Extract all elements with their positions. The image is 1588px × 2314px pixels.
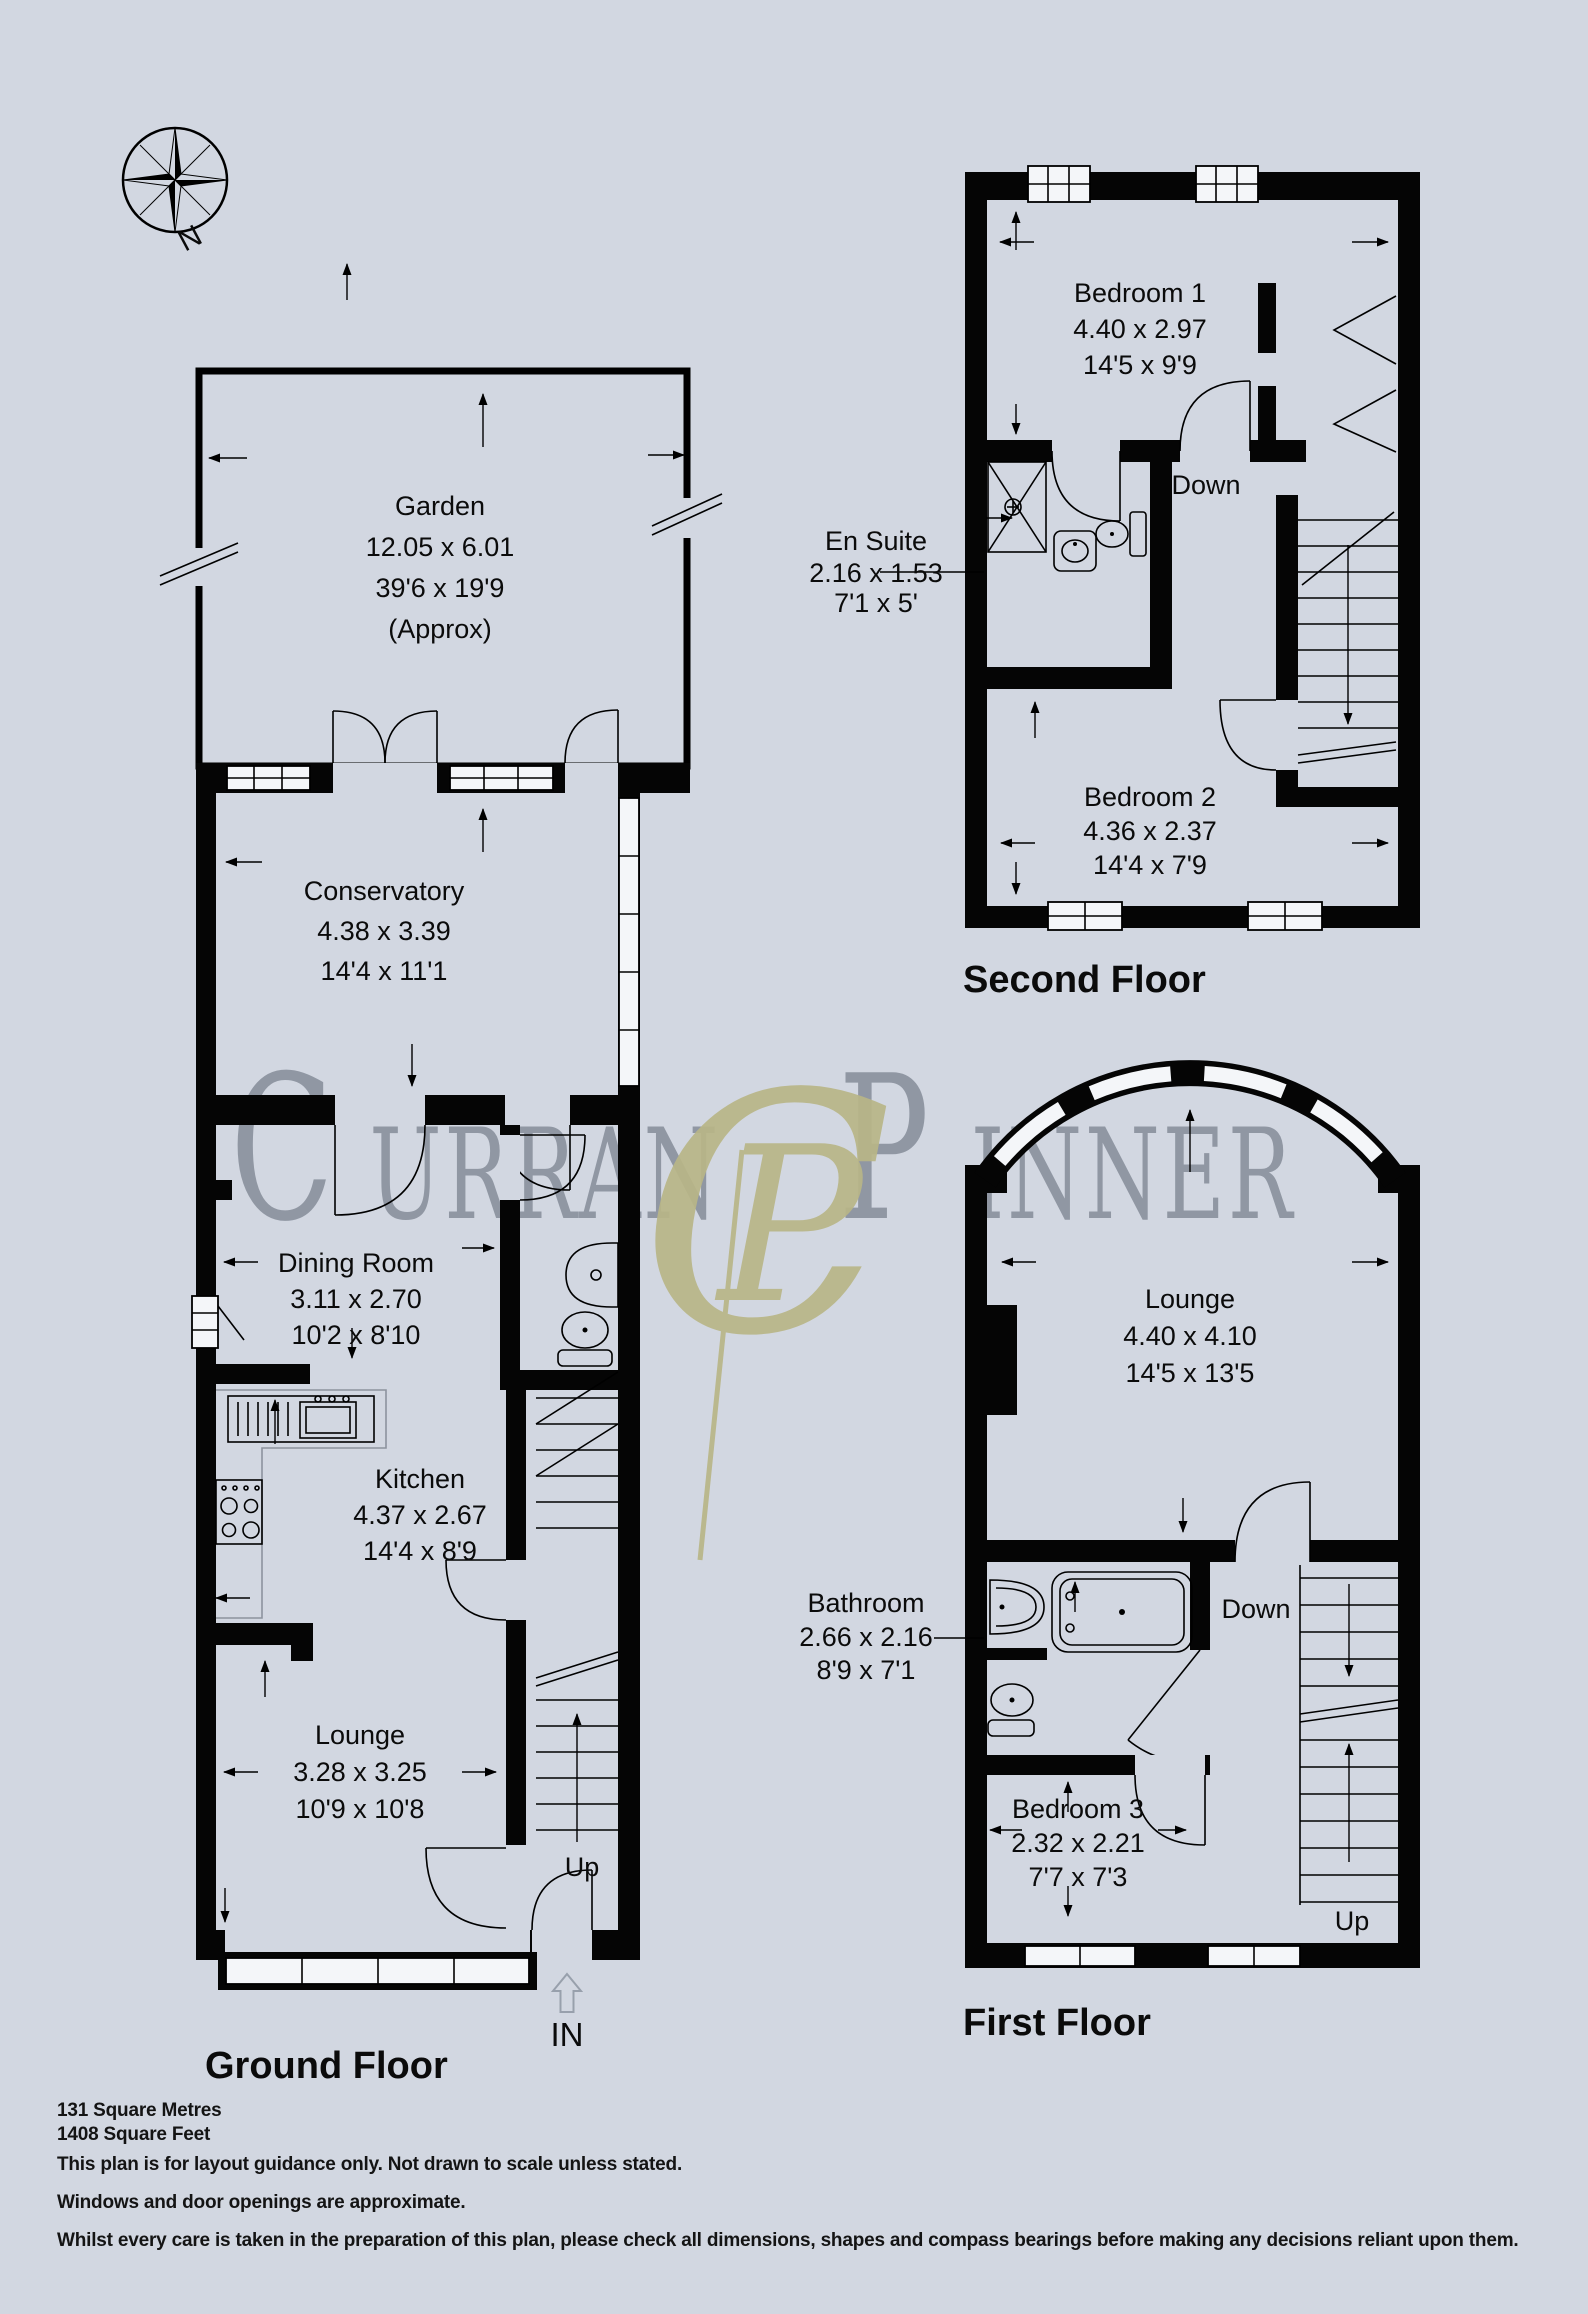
room-label-garden-imperial: 39'6 x 19'9 xyxy=(376,573,505,603)
room-label-bedroom2-name: Bedroom 2 xyxy=(1084,782,1216,812)
footer-disclaimer-3: Whilst every care is taken in the prepar… xyxy=(57,2230,1518,2251)
room-label-bedroom3-imperial: 7'7 x 7'3 xyxy=(1029,1862,1128,1892)
room-label-first-lounge-name: Lounge xyxy=(1145,1284,1235,1314)
footer-disclaimer-2: Windows and door openings are approximat… xyxy=(57,2192,465,2213)
room-label-garden-name: Garden xyxy=(395,491,485,521)
room-label-garden-metric: 12.05 x 6.01 xyxy=(366,532,515,562)
room-label-ground-lounge-name: Lounge xyxy=(315,1720,405,1750)
room-label-bedroom2-metric: 4.36 x 2.37 xyxy=(1083,816,1217,846)
room-label-bathroom-imperial: 8'9 x 7'1 xyxy=(817,1655,916,1685)
room-label-dining-imperial: 10'2 x 8'10 xyxy=(292,1320,421,1350)
footer-area-imperial: 1408 Square Feet xyxy=(57,2124,211,2145)
second-floor-title: Second Floor xyxy=(963,959,1206,1001)
first-floor-title: First Floor xyxy=(963,2002,1151,2044)
room-label-ground-lounge-metric: 3.28 x 3.25 xyxy=(293,1757,427,1787)
room-label-bathroom-name: Bathroom xyxy=(807,1588,924,1618)
room-label-bedroom3-name: Bedroom 3 xyxy=(1012,1794,1144,1824)
floorplan-page: C URRAN P INNER C P N xyxy=(0,0,1588,2314)
room-label-first-lounge-metric: 4.40 x 4.10 xyxy=(1123,1321,1257,1351)
room-label-bedroom1-imperial: 14'5 x 9'9 xyxy=(1083,350,1197,380)
watermark-text: C xyxy=(230,1033,334,1266)
watermark-monogram-icon: P xyxy=(714,1100,866,1351)
room-label-kitchen-name: Kitchen xyxy=(375,1464,465,1494)
room-label-conservatory-name: Conservatory xyxy=(304,876,465,906)
floorplan-drawing: C URRAN P INNER C P N xyxy=(0,0,1588,2314)
first-stairs-down-label: Down xyxy=(1221,1594,1290,1624)
room-label-dining-name: Dining Room xyxy=(278,1248,434,1278)
footer-disclaimer-1: This plan is for layout guidance only. N… xyxy=(57,2154,682,2175)
second-stairs-down-label: Down xyxy=(1171,470,1240,500)
ground-stairs-up-label: Up xyxy=(565,1852,600,1882)
room-label-ensuite-imperial: 7'1 x 5' xyxy=(834,588,918,618)
room-label-conservatory-metric: 4.38 x 3.39 xyxy=(317,916,451,946)
room-label-ground-lounge-imperial: 10'9 x 10'8 xyxy=(296,1794,425,1824)
room-label-first-lounge-imperial: 14'5 x 13'5 xyxy=(1126,1358,1255,1388)
room-label-bathroom-metric: 2.66 x 2.16 xyxy=(799,1622,933,1652)
room-label-bedroom1-metric: 4.40 x 2.97 xyxy=(1073,314,1207,344)
room-label-bedroom2-imperial: 14'4 x 7'9 xyxy=(1093,850,1207,880)
room-label-bedroom3-metric: 2.32 x 2.21 xyxy=(1011,1828,1145,1858)
entrance-in-label: IN xyxy=(551,2016,584,2053)
room-label-kitchen-imperial: 14'4 x 8'9 xyxy=(363,1536,477,1566)
first-stairs-up-label: Up xyxy=(1335,1906,1370,1936)
room-label-bedroom1-name: Bedroom 1 xyxy=(1074,278,1206,308)
room-label-dining-metric: 3.11 x 2.70 xyxy=(290,1284,422,1314)
room-label-conservatory-imperial: 14'4 x 11'1 xyxy=(321,956,448,986)
footer-area-metric: 131 Square Metres xyxy=(57,2100,222,2121)
room-label-ensuite-name: En Suite xyxy=(825,526,927,556)
room-label-garden-note: (Approx) xyxy=(388,614,492,644)
room-label-kitchen-metric: 4.37 x 2.67 xyxy=(353,1500,487,1530)
ground-floor-title: Ground Floor xyxy=(205,2045,448,2087)
room-label-ensuite-metric: 2.16 x 1.53 xyxy=(809,558,943,588)
